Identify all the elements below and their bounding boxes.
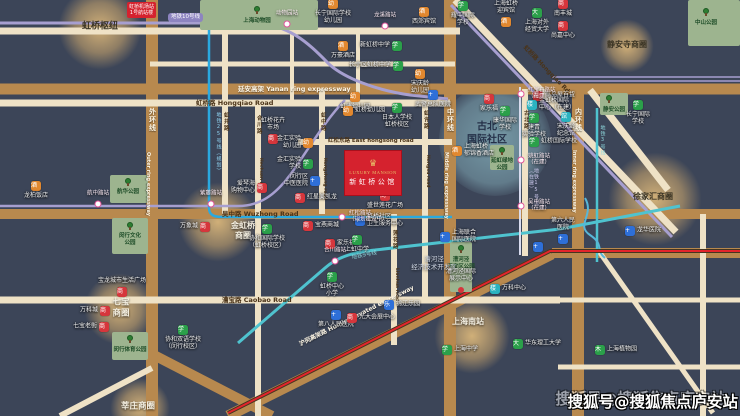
- poi-icon-glyph: 商: [117, 287, 123, 297]
- poi-hospital-icon: +: [428, 90, 438, 100]
- metro-station-label: 姚虹路站 （在建）: [528, 154, 550, 167]
- poi-label: 日本人学校 虹桥校区: [382, 115, 412, 129]
- poi-hotel-icon: 酒: [338, 41, 348, 51]
- metro-station-label: 紫藤路站: [200, 191, 222, 197]
- zone-label: 静安寺商圈: [607, 40, 647, 50]
- poi-label: 锦江乐园: [396, 302, 420, 309]
- road-label: 虹桥路 Hongqiao Road: [196, 100, 273, 107]
- poi-school-icon: 学: [327, 272, 337, 282]
- poi-school-icon: 学: [633, 100, 643, 110]
- metro-station-icon: [339, 214, 346, 221]
- poi-university-icon: 大: [513, 339, 523, 349]
- metro-station-label: 红宝石路站 （在建）: [528, 88, 556, 101]
- poi-icon-glyph: 幼: [343, 106, 349, 116]
- poi-school-icon: 学: [500, 106, 510, 116]
- metro-station-icon: [382, 23, 389, 30]
- poi-school-icon: 学: [262, 224, 272, 234]
- tree-icon: [702, 8, 710, 16]
- metro-station-icon: [95, 201, 102, 208]
- poi-label: 虹桥花卉 市场: [261, 118, 285, 132]
- park-label: 航华公园: [117, 189, 139, 196]
- poi-label: 尚嘉中心: [551, 33, 575, 40]
- road-label: Hongxu road: [425, 155, 430, 188]
- poi-label: 耀中国际 学校: [451, 13, 475, 27]
- zone-label: 上海南站: [452, 317, 484, 327]
- park-area: [200, 0, 318, 30]
- poi-icon-glyph: 酒: [419, 7, 425, 17]
- poi-icon-glyph: 商: [200, 222, 206, 232]
- poi-hospital-icon: +: [625, 226, 635, 236]
- zone-label: 莘庄商圈: [121, 402, 155, 413]
- major-road-line: [228, 254, 552, 416]
- poi-icon-glyph: 酒: [338, 41, 344, 51]
- poi-icon-glyph: +: [331, 310, 336, 320]
- poi-icon-glyph: 商: [99, 322, 105, 332]
- poi-icon-glyph: 幼: [350, 92, 356, 102]
- park-label: 上海动物园: [243, 18, 271, 25]
- metro-station-label: 红松路站 （规划建设中）: [349, 211, 388, 224]
- poi-icon-glyph: 商: [558, 21, 564, 31]
- poi-icon-glyph: 学: [500, 106, 506, 116]
- poi-icon-glyph: 学: [392, 103, 398, 113]
- road-label: 莲花路: [391, 230, 397, 250]
- poi-shopping-icon: 商: [99, 322, 109, 332]
- road-label: 外环线: [149, 108, 156, 132]
- metro-station-icon: [518, 91, 525, 98]
- poi-icon-glyph: 商: [347, 313, 353, 323]
- poi-school-icon: 学: [442, 345, 452, 355]
- road-label: Inner ring expressway: [571, 150, 576, 213]
- poi-icon-glyph: 学: [442, 345, 448, 355]
- road-label: Outer ring expressway: [145, 152, 150, 216]
- poi-label: 万科城: [80, 308, 98, 315]
- poi-school-icon: 学: [392, 103, 402, 113]
- poi-label: 漕河泾国际 展示中心: [446, 269, 476, 283]
- poi-label: 虹桥国际学校: [541, 139, 577, 146]
- zone-label: 虹桥枢纽: [82, 21, 118, 32]
- poi-label: 盛世莲花广场: [367, 203, 403, 210]
- road-label: 虹许路: [422, 110, 428, 130]
- poi-icon-glyph: +: [440, 232, 445, 242]
- poi-label: 光大会展中心: [359, 315, 395, 322]
- poi-icon-glyph: 幼: [415, 69, 421, 79]
- poi-kindergarten-icon: 幼: [343, 106, 353, 116]
- poi-label: 长宁国际 学校: [626, 112, 650, 126]
- poi-label: 龙柏饭店: [24, 193, 48, 200]
- poi-kindergarten-icon: 幼: [303, 138, 313, 148]
- location-map: ♛ LUXURY MANSION 新虹桥公馆 虹桥机场站 1号航站楼 搜狐号@搜…: [0, 0, 740, 416]
- metro-line: [0, 100, 345, 206]
- poi-icon-glyph: 大: [532, 8, 538, 18]
- poi-shopping-icon: 商: [117, 287, 127, 297]
- poi-label: 南丰城: [554, 11, 572, 18]
- poi-hotel-icon: 酒: [452, 146, 462, 156]
- project-marker: ♛ LUXURY MANSION 新虹桥公馆: [344, 150, 402, 196]
- poi-label: 康华国际 学校: [493, 118, 517, 132]
- metro-line-10-label: 地铁10号线: [168, 13, 203, 22]
- poi-school-icon: 学: [393, 61, 403, 71]
- poi-office-icon: 楼: [527, 100, 537, 110]
- poi-icon-glyph: 学: [178, 325, 184, 335]
- metro-station-label: 合川路站: [324, 248, 346, 254]
- poi-label: 金汇实验 幼儿园: [277, 136, 301, 150]
- poi-school-icon: 学: [458, 1, 468, 11]
- poi-hospital-icon: +: [331, 310, 341, 320]
- poi-label: 协和双语学校 （闵行校区）: [165, 337, 201, 351]
- tree-icon: [253, 6, 261, 14]
- poi-icon-glyph: 大: [513, 339, 519, 349]
- zone-label: 徐家汇商圈: [633, 192, 673, 202]
- poi-shopping-icon: 商: [347, 313, 357, 323]
- poi-label: 上海虹桥 郁锦香酒店: [464, 144, 494, 158]
- poi-label: 协和国际学校 （虹桥校区）: [249, 236, 285, 250]
- tree-trunk: [129, 340, 131, 343]
- poi-label: 上海对外 经贸大学: [525, 20, 549, 34]
- poi-label: 上海植物园: [607, 347, 637, 354]
- poi-label: 闵行区 中医医院: [284, 174, 308, 188]
- road-label: 漕宝路 Caobao Road: [222, 297, 292, 304]
- poi-office-icon: 楼: [490, 284, 500, 294]
- poi-icon-glyph: 幼: [303, 138, 309, 148]
- poi-shopping-icon: 商: [200, 222, 210, 232]
- road-label: 内环线: [575, 108, 582, 132]
- poi-icon-glyph: 乐: [384, 300, 390, 310]
- poi-school-icon: 学: [392, 41, 402, 51]
- poi-icon-glyph: 学: [303, 159, 309, 169]
- poi-label: 上海中学: [454, 347, 478, 354]
- poi-school-icon: 学: [178, 325, 188, 335]
- poi-label: 宋庆龄 幼儿园: [411, 81, 429, 95]
- poi-icon-glyph: 楼: [527, 100, 533, 110]
- poi-label: 红星美凯龙: [307, 195, 337, 202]
- poi-hospital-icon: +: [440, 232, 450, 242]
- poi-school-icon: 学: [352, 235, 362, 245]
- road-label: 中环线: [447, 108, 454, 132]
- poi-label: 西郊宾馆: [412, 19, 436, 26]
- tree-trunk: [705, 13, 707, 16]
- project-crest-icon: ♛: [369, 160, 377, 169]
- poi-icon-glyph: 学: [529, 137, 535, 147]
- poi-kindergarten-icon: 幼: [415, 69, 425, 79]
- poi-hospital-icon: +: [310, 176, 320, 186]
- poi-hotel-icon: 酒: [31, 181, 41, 191]
- poi-icon-glyph: 馆: [561, 112, 567, 122]
- poi-icon-glyph: 商: [295, 193, 301, 203]
- poi-icon-glyph: +: [428, 90, 433, 100]
- road-label: 红松东路 East hongsong road: [328, 139, 414, 145]
- poi-attraction-icon: 乐: [384, 300, 394, 310]
- poi-icon-glyph: +: [533, 242, 538, 252]
- poi-icon-glyph: 商: [100, 306, 106, 316]
- poi-icon-glyph: 学: [633, 100, 639, 110]
- poi-icon-glyph: 商: [558, 0, 564, 9]
- park-label: 延虹绿地 公园: [491, 158, 513, 171]
- poi-icon-glyph: 酒: [501, 17, 507, 27]
- project-name-en: LUXURY MANSION: [349, 170, 396, 175]
- park-label: 静安公园: [603, 107, 625, 114]
- poi-kindergarten-icon: 幼: [350, 92, 360, 102]
- metro-station-icon: [518, 203, 525, 210]
- poi-shopping-icon: 商: [303, 221, 313, 231]
- poi-icon-glyph: 酒: [452, 146, 458, 156]
- tree-trunk: [256, 11, 258, 14]
- tree-icon: [126, 335, 134, 343]
- watermark-text: 搜狐号@搜狐焦点庐安站 搜狐号@搜狐焦点庐安站: [567, 390, 738, 412]
- poi-label: 虹桥中心 小学: [320, 284, 344, 298]
- poi-label: 万象城: [180, 224, 198, 231]
- road-label: 虹井路: [222, 112, 228, 132]
- tree-trunk: [127, 183, 129, 186]
- tree-icon: [126, 222, 134, 230]
- airport-station-badge: 虹桥机场站 1号航站楼: [127, 2, 156, 18]
- poi-label: 武警总队医院: [415, 102, 451, 109]
- poi-label: 七宝老街: [73, 324, 97, 331]
- zone-label: 七宝 商圈: [112, 297, 129, 318]
- poi-label: 万科中心: [502, 286, 526, 293]
- tree-icon: [498, 147, 506, 155]
- poi-label: 上虹中学: [345, 247, 369, 254]
- poi-label: 虹桥幼儿园: [355, 108, 385, 115]
- metro-station-label: 龙溪路站: [374, 13, 396, 19]
- poi-icon-glyph: 木: [595, 345, 601, 355]
- metro-station-icon: [518, 157, 525, 164]
- poi-school-icon: 学: [303, 159, 313, 169]
- poi-kindergarten-icon: 幼: [328, 0, 338, 9]
- road-label: 虹中路: [319, 112, 325, 132]
- tree-trunk: [608, 100, 610, 103]
- poi-label: 上海联合 国际医院: [452, 230, 476, 244]
- road-label: 吴中路 Wuzhong Road: [222, 211, 299, 218]
- poi-icon-glyph: 商: [268, 134, 274, 144]
- road-label: 地铁25号线（规划）: [216, 112, 221, 174]
- poi-icon-glyph: 学: [352, 235, 358, 245]
- poi-icon-glyph: +: [310, 176, 315, 186]
- poi-icon-glyph: 楼: [490, 284, 496, 294]
- poi-icon-glyph: 学: [262, 224, 268, 234]
- poi-icon-glyph: +: [558, 234, 563, 244]
- poi-memorial-icon: 馆: [561, 112, 571, 122]
- poi-label: 长宁区虹桥中学: [349, 63, 391, 70]
- poi-shopping-icon: 商: [558, 21, 568, 31]
- poi-shopping-icon: 商: [257, 183, 267, 193]
- metro-station-icon: [332, 258, 339, 265]
- poi-label: 上海虹桥 迎宾馆: [494, 1, 518, 15]
- metro-station-label: 动物园站: [276, 11, 298, 17]
- poi-label: 宋庆龄 纪念馆: [557, 124, 575, 138]
- poi-label: 新虹桥中学: [360, 43, 390, 50]
- poi-garden-icon: 木: [595, 345, 605, 355]
- poi-hospital-icon: +: [533, 242, 543, 252]
- poi-hospital-icon: +: [558, 234, 568, 244]
- poi-icon-glyph: 学: [458, 1, 464, 11]
- metro-station-icon: [208, 201, 215, 208]
- poi-icon-glyph: 学: [392, 41, 398, 51]
- poi-shopping-icon: 商: [558, 0, 568, 9]
- poi-icon-glyph: 学: [529, 113, 535, 123]
- tree-trunk: [460, 250, 462, 253]
- poi-label: 家乐福: [480, 106, 498, 113]
- poi-label: 爱琴海 购物中心: [231, 181, 255, 195]
- park-label: 中山公园: [695, 20, 717, 27]
- poi-label: 第六人民 医院: [551, 218, 575, 232]
- poi-university-icon: 大: [532, 8, 542, 18]
- park-label: 闵行体育公园: [113, 347, 146, 354]
- metro-station-label: 吴中路站 （在建）: [528, 200, 550, 213]
- poi-icon-glyph: 商: [257, 183, 263, 193]
- poi-label: 万豪酒店: [331, 53, 355, 60]
- poi-hotel-icon: 酒: [501, 17, 511, 27]
- poi-school-icon: 学: [529, 137, 539, 147]
- park-label: 闵行文化 公园: [119, 233, 141, 246]
- tree-icon: [457, 245, 465, 253]
- poi-shopping-icon: 商: [484, 94, 494, 104]
- poi-icon-glyph: 学: [393, 61, 399, 71]
- metro-station-label: 航中路站: [87, 191, 109, 197]
- road-label: 合川路: [255, 115, 261, 135]
- poi-label: 长宁国际学校 幼儿园: [315, 11, 351, 25]
- tree-icon: [124, 178, 132, 186]
- poi-icon-glyph: 学: [327, 272, 333, 282]
- poi-icon-glyph: 商: [484, 94, 490, 104]
- poi-shopping-icon: 商: [100, 306, 110, 316]
- tree-icon: [605, 95, 613, 103]
- road-label: Lianhua road: [394, 268, 399, 301]
- road-label: Middle ring expressway: [443, 152, 448, 219]
- major-road-line: [148, 352, 272, 416]
- poi-school-icon: 学: [529, 113, 539, 123]
- tree-trunk: [501, 152, 503, 155]
- poi-label: 宝龙城市生活广场: [98, 278, 146, 285]
- road-label: 延安高架 Yanan ring expressway: [238, 86, 351, 93]
- poi-icon-glyph: 商: [303, 221, 309, 231]
- poi-icon-glyph: 酒: [31, 181, 37, 191]
- road-label: 地铁3号线: [600, 125, 605, 156]
- poi-label: 第八人民医院: [318, 322, 354, 329]
- metro-station-icon: [284, 21, 291, 28]
- poi-label: 龙华医院: [637, 228, 661, 235]
- poi-red-dot-icon: [458, 287, 464, 293]
- poi-hotel-icon: 酒: [419, 7, 429, 17]
- project-name-cn: 新虹桥公馆: [349, 177, 397, 187]
- poi-label: 金汇实验 学校: [277, 157, 301, 171]
- poi-label: 宝燕商城: [315, 223, 339, 230]
- tree-trunk: [129, 227, 131, 230]
- poi-shopping-icon: 商: [295, 193, 305, 203]
- poi-icon-glyph: +: [625, 226, 630, 236]
- poi-label: 华东理工大学: [525, 341, 561, 348]
- poi-icon-glyph: 幼: [328, 0, 334, 9]
